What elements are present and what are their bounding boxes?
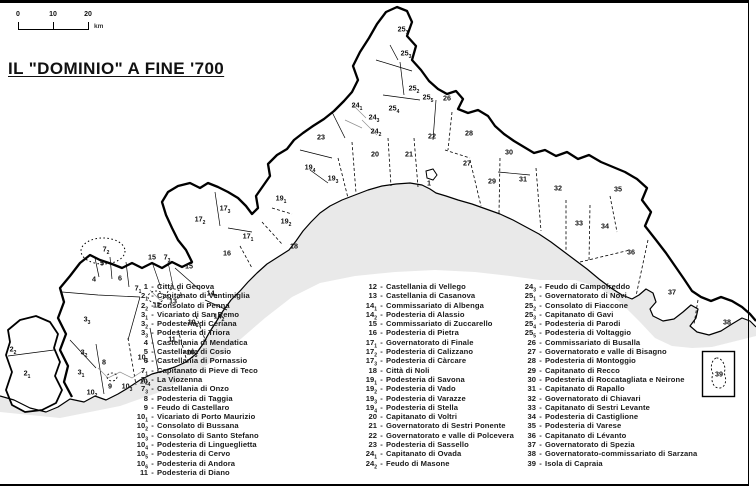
map-region-label: 241 [352,101,363,110]
legend-entry-separator: - [536,421,545,430]
legend-entry-name: Podesteria di Pietra [386,328,459,337]
legend-entry-separator: - [377,291,386,300]
legend-entry: 21-Governatorato di Sestri Ponente [360,421,514,430]
figure-dominio-map: km 01020 IL "DOMINIO" A FINE '700 121223… [0,0,756,497]
map-region-label: 102 [87,388,98,397]
legend-entry-number: 20 [360,412,377,421]
legend-entry-name: Podesteria di Parodi [545,319,620,328]
legend-entry-name: Governatorato di Novi [545,291,627,300]
legend-entry-number: 9 [131,403,148,412]
map-region-label: 22 [428,132,436,141]
legend-entry: 171-Governatorato di Finale [360,338,514,347]
legend-entry-separator: - [377,449,386,458]
map-region-label: 6 [118,274,122,283]
map-region-label: 23 [317,133,325,142]
legend-entry-separator: - [148,394,157,403]
legend-entry: 29-Capitanato di Recco [519,366,697,375]
legend-entry-separator: - [536,291,545,300]
legend-entry: 254-Podesteria di Parodi [519,319,697,328]
legend-entry-name: Feudo di Castellaro [157,403,229,412]
legend-entry-name: Podesteria di Ceriana [157,319,237,328]
legend-entry-number: 23 [360,440,377,449]
legend-entry-separator: - [148,412,157,421]
legend-entry-separator: - [536,338,545,347]
legend-entry-name: Capitanato di Voltri [386,412,457,421]
legend-entry: 253-Capitanato di Gavi [519,310,697,319]
legend-entry-number: 36 [519,431,536,440]
legend-entry-number: 243 [519,282,536,291]
legend-entry-separator: - [377,328,386,337]
legend-entry-name: Governatorato-commissariato di Sarzana [545,449,697,458]
legend-entry: 101-Vicariato di Porto Maurizio [131,412,259,421]
legend-entry-number: 11 [131,468,148,477]
legend-entry-separator: - [377,412,386,421]
legend-entry: 33-Capitanato di Sestri Levante [519,403,697,412]
map-region-label: 28 [465,129,473,138]
legend-entry-name: Governatorato di Sestri Ponente [386,421,506,430]
map-region-label: 73 [164,253,171,262]
legend-entry-separator: - [377,403,386,412]
legend-entry-name: Città di Noli [386,366,430,375]
scale-bar-tick [53,22,54,30]
legend-entry-number: 142 [360,310,377,319]
legend-entry-name: Isola di Capraia [545,459,603,468]
legend-entry-separator: - [536,431,545,440]
legend-entry-separator: - [148,449,157,458]
scale-bar-unit: km [94,23,103,30]
legend-entry: 32-Podesteria di Ceriana [131,319,259,328]
legend-entry-number: 32 [131,319,148,328]
legend-entry-name: Consolato di Santo Stefano [157,431,259,440]
legend-entry-number: 103 [131,431,148,440]
scale-bar-tick-label: 10 [49,11,57,18]
legend-entry-separator: - [536,356,545,365]
legend-entry: 191-Podesteria di Savona [360,375,514,384]
map-region-label: 18 [290,242,298,251]
legend-entry-number: 18 [360,366,377,375]
legend-entry-number: 255 [519,328,536,337]
legend-entry-number: 241 [360,449,377,458]
legend-entry-name: Castellania di Pornassio [157,356,247,365]
legend-entry-separator: - [536,403,545,412]
map-region-label: 194 [305,163,316,172]
legend-entry: 71-Capitanato di Pieve di Teco [131,366,259,375]
legend-entry-number: 28 [519,356,536,365]
legend-entry: 30-Podesteria di Roccatagliata e Neirone [519,375,697,384]
map-region-label: 30 [505,148,513,157]
legend-entry-separator: - [148,347,157,356]
legend-entry-number: 22 [131,301,148,310]
legend-entry-separator: - [148,468,157,477]
legend-entry-number: 35 [519,421,536,430]
legend-entry-number: 5 [131,347,148,356]
legend-entry: 22-Consolato di Penna [131,301,259,310]
legend-entry-separator: - [377,301,386,310]
map-region-label: 26 [443,94,451,103]
legend-entry-number: 251 [519,291,536,300]
map-region-label: 32 [554,184,562,193]
legend-entry-name: Vicariato di Porto Maurizio [157,412,255,421]
legend-entry: 192-Podesteria di Vado [360,384,514,393]
legend-entry-separator: - [536,366,545,375]
legend-entry-separator: - [377,375,386,384]
legend-entry-name: Capitanato di Rapallo [545,384,625,393]
legend-entry: 35-Podesteria di Varese [519,421,697,430]
legend-entry-separator: - [536,394,545,403]
legend-entry-separator: - [536,449,545,458]
legend-entry: 241-Capitanato di Ovada [360,449,514,458]
legend-entry-separator: - [377,459,386,468]
scale-bar: km 01020 [18,20,88,30]
legend-entry: 15-Commissariato di Zuccarello [360,319,514,328]
map-region-label: 4 [92,275,96,284]
legend-entry-name: Podesteria di Andora [157,459,235,468]
map-region-label: 20 [371,150,379,159]
legend-entry-separator: - [148,431,157,440]
legend-entry-number: 26 [519,338,536,347]
map-region-label: 22 [10,345,17,354]
map-region-label: 33 [84,315,91,324]
map-region-label: 193 [328,174,339,183]
map-region-label: 29 [488,177,496,186]
legend-entry-number: 27 [519,347,536,356]
legend-entry-number: 15 [360,319,377,328]
map-region-label: 8 [102,358,106,367]
legend-entry: 36-Capitanato di Lévanto [519,431,697,440]
legend-entry-name: Capitanato di Ovada [386,449,461,458]
legend-entry-name: Podesteria di Cervo [157,449,230,458]
scale-bar-tick-label: 0 [16,11,20,18]
legend-entry-name: Castellania di Vellego [386,282,466,291]
legend-entry-name: Commissariato di Zuccarello [386,319,493,328]
scale-bar-tick [88,22,89,30]
legend-entry-separator: - [377,384,386,393]
legend-entry-name: Feudo di Campofreddo [545,282,630,291]
legend-entry-name: Città di Genova [157,282,214,291]
legend-entry-separator: - [377,366,386,375]
map-region-label: 1 [427,179,431,188]
legend-entry: 242-Feudo di Masone [360,459,514,468]
map-region-label: 21 [405,150,413,159]
legend-entry-name: Podesteria di Varazze [386,394,466,403]
map-region-label: 172 [195,215,206,224]
legend-entry-number: 191 [360,375,377,384]
legend-entry-number: 39 [519,459,536,468]
legend-entry-name: Castellania di Casanova [386,291,475,300]
legend-entry-separator: - [148,459,157,468]
legend-entry: 22-Governatorato e valle di Polcevera [360,431,514,440]
legend-entry: 194-Podesteria di Stella [360,403,514,412]
legend-entry-name: Podesteria di Stella [386,403,458,412]
legend-entry-separator: - [148,421,157,430]
legend-entry-separator: - [536,412,545,421]
map-region-label: 242 [371,127,382,136]
legend-entry-separator: - [536,301,545,310]
legend-entry: 21-Capitanato di Ventimiglia [131,291,259,300]
legend-entry-separator: - [377,356,386,365]
legend-entry: 31-Capitanato di Rapallo [519,384,697,393]
legend-entry-separator: - [148,338,157,347]
legend-entry: 251-Governatorato di Novi [519,291,697,300]
map-region-label: 32 [81,348,88,357]
map-region-label: 21 [24,369,31,378]
legend-entry-name: Commissariato di Busalla [545,338,640,347]
legend-entry: 1-Città di Genova [131,282,259,291]
legend-entry-number: 193 [360,394,377,403]
map-region-label: 72 [103,245,110,254]
page-title: IL "DOMINIO" A FINE '700 [8,59,224,79]
legend-entry-separator: - [536,440,545,449]
legend-entry-separator: - [148,310,157,319]
legend-entry-number: 102 [131,421,148,430]
legend-entry-number: 192 [360,384,377,393]
legend-entry: 26-Commissariato di Busalla [519,338,697,347]
legend-entry-name: Podesteria di Castiglione [545,412,638,421]
legend-entry-number: 104 [131,440,148,449]
legend-entry-name: Podesteria di Vado [386,384,456,393]
legend-entry: 72-La Viozenna [131,375,259,384]
legend-entry-number: 254 [519,319,536,328]
legend-entry-name: La Viozenna [157,375,202,384]
legend-entry-separator: - [148,375,157,384]
legend-entry-separator: - [148,301,157,310]
legend-entry-number: 31 [131,310,148,319]
legend-entry: 243-Feudo di Campofreddo [519,282,697,291]
legend-entry-number: 37 [519,440,536,449]
legend-entry-name: Podesteria di Alassio [386,310,465,319]
legend-entry: 173-Podesteria di Càrcare [360,356,514,365]
legend-entry-separator: - [148,291,157,300]
map-region-label: 34 [601,222,609,231]
legend-entry-number: 105 [131,449,148,458]
legend-entry-number: 171 [360,338,377,347]
legend-entry: 6-Castellania di Pornassio [131,356,259,365]
legend-entry: 141-Commissariato di Albenga [360,301,514,310]
map-region-label: 255 [423,93,434,102]
legend-entry-name: Consolato di Bussana [157,421,239,430]
legend-entry-separator: - [536,328,545,337]
legend-entry-separator: - [148,403,157,412]
legend-entry-number: 12 [360,282,377,291]
legend-entry-number: 4 [131,338,148,347]
legend-entry-separator: - [148,384,157,393]
legend-entry-number: 242 [360,459,377,468]
legend-entry-separator: - [148,282,157,291]
legend-entry-name: Governatorato di Spezia [545,440,635,449]
legend-entry-name: Capitanato di Sestri Levante [545,403,650,412]
map-region-label: 31 [519,175,527,184]
legend-entry-number: 22 [360,431,377,440]
legend-entry: 16-Podesteria di Pietra [360,328,514,337]
legend-entry-number: 71 [131,366,148,375]
legend-entry-number: 106 [131,459,148,468]
map-region-label: 36 [627,248,635,257]
legend-entry-number: 101 [131,412,148,421]
map-region-label: 251 [398,25,409,34]
map-region-label: 33 [575,219,583,228]
legend-entry-name: Podesteria di Montoggio [545,356,636,365]
map-region-label: 35 [614,185,622,194]
legend-entry-separator: - [377,338,386,347]
legend-entry-number: 72 [131,375,148,384]
legend-entry-name: Podesteria di Diano [157,468,230,477]
legend-entry: 34-Podesteria di Castiglione [519,412,697,421]
legend-entry-number: 29 [519,366,536,375]
legend-entry-separator: - [148,440,157,449]
legend-column-2: 12-Castellania di Vellego13-Castellania … [360,282,514,468]
legend-entry: 23-Podesteria di Sassello [360,440,514,449]
legend-entry-separator: - [377,347,386,356]
legend-entry-name: Podesteria di Roccatagliata e Neirone [545,375,685,384]
legend-entry-number: 34 [519,412,536,421]
legend-entry-separator: - [536,282,545,291]
legend-entry: 37-Governatorato di Spezia [519,440,697,449]
legend-entry: 9-Feudo di Castellaro [131,403,259,412]
scale-bar-tick-label: 20 [84,11,92,18]
legend-entry: 20-Capitanato di Voltri [360,412,514,421]
legend-entry: 106-Podesteria di Andora [131,459,259,468]
legend-entry-separator: - [536,310,545,319]
map-region-label: 171 [243,232,254,241]
legend-entry-name: Capitanato di Pieve di Teco [157,366,258,375]
map-region-label: 191 [276,194,287,203]
legend-entry-separator: - [148,319,157,328]
legend-entry-number: 16 [360,328,377,337]
legend-entry-name: Castellania di Mendatica [157,338,248,347]
map-region-label: 15 [185,262,193,271]
map-region-label: 243 [369,113,380,122]
legend-entry-number: 38 [519,449,536,458]
legend-entry: 172-Podesteria di Calizzano [360,347,514,356]
legend-entry-separator: - [377,440,386,449]
map-region-label: 5 [100,259,104,268]
legend-entry-name: Consolato di Penna [157,301,230,310]
legend-entry: 73-Castellania di Onzo [131,384,259,393]
legend-entry-number: 30 [519,375,536,384]
legend-entry-number: 6 [131,356,148,365]
scale-bar-tick [18,22,19,30]
legend-entry: 4-Castellania di Mendatica [131,338,259,347]
legend-entry-number: 194 [360,403,377,412]
legend-entry: 252-Consolato di Fiaccone [519,301,697,310]
legend-entry-number: 73 [131,384,148,393]
legend-entry-separator: - [377,431,386,440]
legend-entry-separator: - [536,459,545,468]
map-region-label: 31 [78,368,85,377]
legend-entry-separator: - [536,375,545,384]
legend-entry: 255-Podesteria di Voltaggio [519,328,697,337]
legend-entry-number: 172 [360,347,377,356]
legend-entry-name: Podesteria di Varese [545,421,621,430]
legend-entry-separator: - [148,366,157,375]
legend-entry-name: Commissariato di Albenga [386,301,484,310]
legend-entry-number: 31 [519,384,536,393]
land-region-2 [6,316,62,412]
legend-entry: 38-Governatorato-commissariato di Sarzan… [519,449,697,458]
legend-entry-name: Capitanato di Ventimiglia [157,291,250,300]
legend-entry-number: 1 [131,282,148,291]
legend-entry: 102-Consolato di Bussana [131,421,259,430]
legend-entry-number: 21 [131,291,148,300]
legend-entry: 28-Podesteria di Montoggio [519,356,697,365]
map-region-label: 254 [389,104,400,113]
legend-entry-name: Vicariato di San Remo [157,310,239,319]
legend-entry: 104-Podesteria di Lingueglietta [131,440,259,449]
map-region-label: 173 [220,204,231,213]
legend-entry-number: 8 [131,394,148,403]
legend-entry-number: 21 [360,421,377,430]
legend-entry-separator: - [148,328,157,337]
legend-column-1: 1-Città di Genova21-Capitanato di Ventim… [131,282,259,477]
map-region-label: 16 [223,249,231,258]
legend-entry: 27-Governatorato e valle di Bisagno [519,347,697,356]
legend-entry-separator: - [377,319,386,328]
legend-entry-number: 141 [360,301,377,310]
legend-entry-separator: - [377,282,386,291]
legend-entry-number: 253 [519,310,536,319]
legend-entry-name: Podesteria di Calizzano [386,347,473,356]
legend-entry: 39-Isola di Capraia [519,459,697,468]
legend-entry-separator: - [536,319,545,328]
legend-entry: 33-Podesteria di Triora [131,328,259,337]
legend-entry-name: Capitanato di Lévanto [545,431,626,440]
legend-entry-name: Podesteria di Savona [386,375,465,384]
map-region-label: 38 [723,318,731,327]
legend-entry-number: 33 [131,328,148,337]
legend-entry-number: 32 [519,394,536,403]
legend-entry-name: Castellania di Onzo [157,384,229,393]
map-region-label: 15 [148,253,156,262]
legend-entry: 5-Castellania di Cosio [131,347,259,356]
legend-entry: 193-Podesteria di Varazze [360,394,514,403]
legend-entry: 32-Governatorato di Chiavari [519,394,697,403]
legend-entry-name: Podesteria di Càrcare [386,356,466,365]
legend-entry-separator: - [536,384,545,393]
legend-entry: 142-Podesteria di Alassio [360,310,514,319]
legend-entry-name: Governatorato di Chiavari [545,394,641,403]
legend-entry-name: Capitanato di Recco [545,366,620,375]
legend-entry-separator: - [148,356,157,365]
legend-entry-number: 173 [360,356,377,365]
legend-entry-name: Podesteria di Voltaggio [545,328,631,337]
legend-entry-name: Consolato di Fiaccone [545,301,628,310]
map-region-label: 192 [281,217,292,226]
legend-entry: 13-Castellania di Casanova [360,291,514,300]
map-region-label: 253 [401,49,412,58]
legend-entry-name: Podesteria di Triora [157,328,230,337]
legend-entry-name: Feudo di Masone [386,459,450,468]
legend-entry-name: Governatorato e valle di Bisagno [545,347,667,356]
legend-entry-name: Governatorato e valle di Polcevera [386,431,514,440]
legend-entry-name: Podesteria di Sassello [386,440,469,449]
legend-entry: 31-Vicariato di San Remo [131,310,259,319]
legend-column-3: 243-Feudo di Campofreddo251-Governatorat… [519,282,697,468]
legend-entry: 8-Podesteria di Taggia [131,394,259,403]
map-region-label: 9 [108,382,112,391]
map-region-label: 27 [463,159,471,168]
legend-entry-number: 33 [519,403,536,412]
legend-entry: 18-Città di Noli [360,366,514,375]
legend-entry: 103-Consolato di Santo Stefano [131,431,259,440]
legend-entry: 11-Podesteria di Diano [131,468,259,477]
legend-entry-number: 13 [360,291,377,300]
map-region-label: 39 [715,370,723,379]
legend-entry-name: Castellania di Cosio [157,347,231,356]
legend-entry-name: Governatorato di Finale [386,338,474,347]
legend-entry: 12-Castellania di Vellego [360,282,514,291]
legend-entry-name: Podesteria di Taggia [157,394,233,403]
legend-entry: 105-Podesteria di Cervo [131,449,259,458]
